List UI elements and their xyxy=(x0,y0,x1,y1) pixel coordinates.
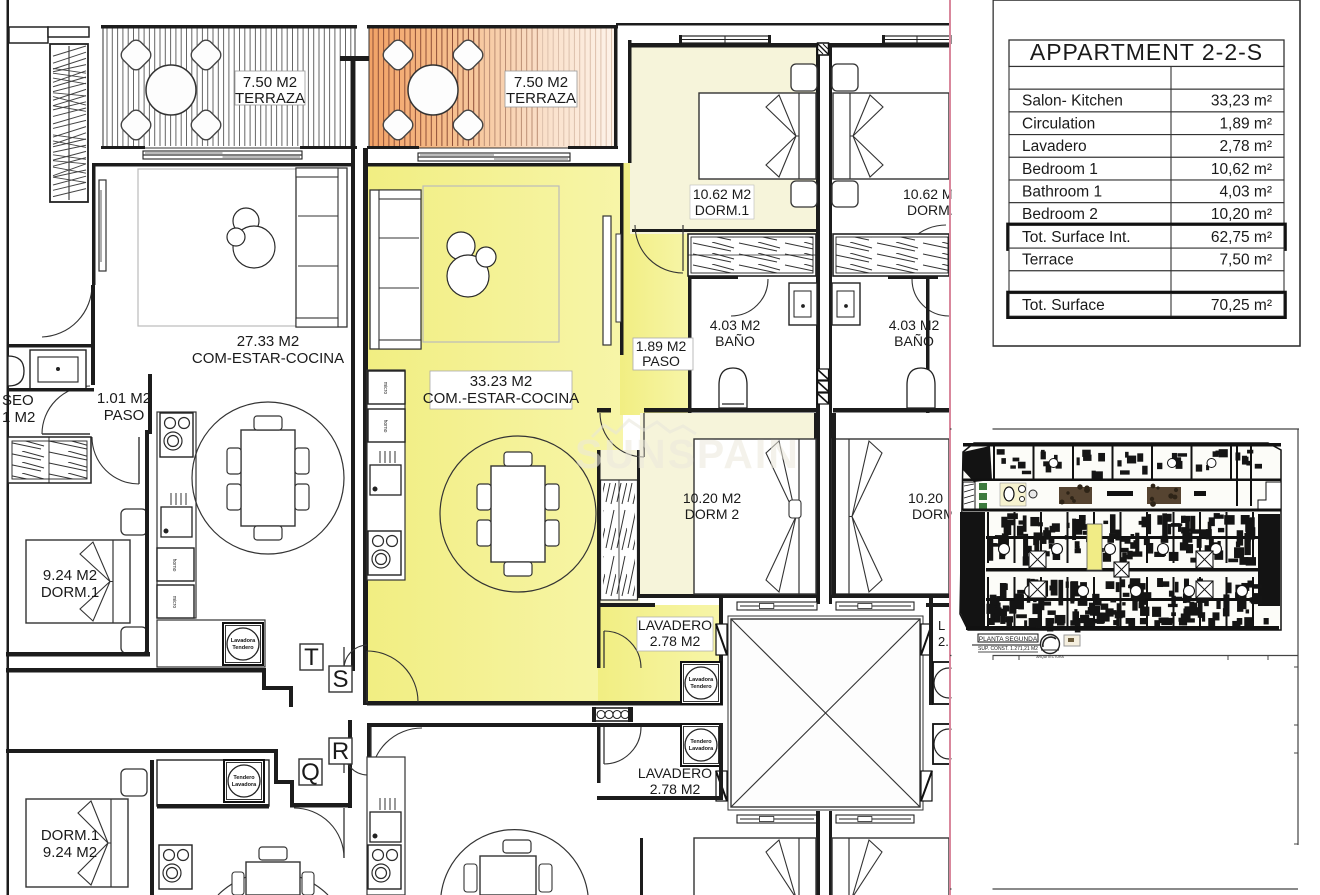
svg-text:10,62 m²: 10,62 m² xyxy=(1211,161,1272,178)
svg-text:COM-ESTAR-COCINA: COM-ESTAR-COCINA xyxy=(192,350,344,367)
svg-text:7.50 M2: 7.50 M2 xyxy=(514,74,568,91)
svg-text:4.03 M2: 4.03 M2 xyxy=(889,317,940,333)
svg-text:horno: horno xyxy=(382,420,388,433)
svg-text:10.20: 10.20 xyxy=(908,490,943,506)
svg-text:62,75 m²: 62,75 m² xyxy=(1211,229,1272,246)
svg-text:10.62 M: 10.62 M xyxy=(903,186,954,202)
svg-text:L: L xyxy=(938,618,945,633)
svg-text:Tot. Surface Int.: Tot. Surface Int. xyxy=(1022,229,1131,246)
svg-text:DORM.1: DORM.1 xyxy=(41,827,99,844)
svg-text:27.33 M2: 27.33 M2 xyxy=(237,333,300,350)
svg-text:SUNSPAIN: SUNSPAIN xyxy=(575,431,800,477)
svg-text:Bathroom 1: Bathroom 1 xyxy=(1022,184,1102,201)
svg-text:Tendero: Tendero xyxy=(690,684,712,690)
svg-text:micro: micro xyxy=(171,596,177,608)
svg-text:Tendero: Tendero xyxy=(690,739,712,745)
svg-text:1.01 M2: 1.01 M2 xyxy=(97,390,151,407)
svg-text:10.62 M2: 10.62 M2 xyxy=(693,186,752,202)
svg-text:2.: 2. xyxy=(938,634,949,649)
svg-text:4,03 m²: 4,03 m² xyxy=(1219,184,1272,201)
svg-text:10,20 m²: 10,20 m² xyxy=(1211,206,1272,223)
svg-text:Bedroom 1: Bedroom 1 xyxy=(1022,161,1098,178)
svg-text:BAÑO: BAÑO xyxy=(894,333,934,349)
svg-text:DORM.: DORM. xyxy=(907,202,954,218)
svg-text:Q: Q xyxy=(301,759,320,786)
svg-text:TERRAZA: TERRAZA xyxy=(235,90,305,107)
svg-text:PASO: PASO xyxy=(104,407,145,424)
svg-text:7,50 m²: 7,50 m² xyxy=(1219,252,1272,269)
svg-text:2.78 M2: 2.78 M2 xyxy=(650,781,701,797)
svg-text:DORM: DORM xyxy=(912,506,955,522)
svg-text:SUP. CONST. 1.271,21 M2: SUP. CONST. 1.271,21 M2 xyxy=(978,646,1038,652)
svg-text:PASO: PASO xyxy=(642,353,680,369)
svg-text:Circulation: Circulation xyxy=(1022,115,1095,132)
svg-text:horno: horno xyxy=(171,559,177,572)
svg-text:2,78 m²: 2,78 m² xyxy=(1219,138,1272,155)
svg-text:TERRAZA: TERRAZA xyxy=(506,90,576,107)
svg-text:APPARTMENT 2-2-S: APPARTMENT 2-2-S xyxy=(1030,39,1263,65)
svg-text:PLANTA SEGUNDA: PLANTA SEGUNDA xyxy=(979,636,1038,643)
svg-text:1,89 m²: 1,89 m² xyxy=(1219,115,1272,132)
svg-text:LAVADERO: LAVADERO xyxy=(638,617,712,633)
svg-text:70,25 m²: 70,25 m² xyxy=(1211,297,1272,314)
svg-text:33,23 m²: 33,23 m² xyxy=(1211,93,1272,110)
svg-text:Terrace: Terrace xyxy=(1022,252,1074,269)
svg-text:S: S xyxy=(332,666,348,693)
svg-text:SEO: SEO xyxy=(2,392,34,409)
svg-text:1 M2: 1 M2 xyxy=(2,409,35,426)
svg-text:Bedroom 2: Bedroom 2 xyxy=(1022,206,1098,223)
svg-text:Salon- Kitchen: Salon- Kitchen xyxy=(1022,93,1123,110)
svg-text:1.89 M2: 1.89 M2 xyxy=(636,338,687,354)
svg-text:10.20 M2: 10.20 M2 xyxy=(683,490,742,506)
svg-text:33.23 M2: 33.23 M2 xyxy=(470,373,533,390)
svg-text:Tendero: Tendero xyxy=(232,645,254,651)
svg-text:DORM.1: DORM.1 xyxy=(41,584,99,601)
svg-text:4.03 M2: 4.03 M2 xyxy=(710,317,761,333)
svg-text:Lavadero: Lavadero xyxy=(1022,138,1087,155)
svg-text:Lavadora: Lavadora xyxy=(231,638,256,644)
svg-text:R: R xyxy=(332,738,349,765)
svg-text:9.24 M2: 9.24 M2 xyxy=(43,567,97,584)
svg-text:micro: micro xyxy=(382,382,388,394)
svg-text:BAÑO: BAÑO xyxy=(715,333,755,349)
svg-text:Tot. Surface: Tot. Surface xyxy=(1022,297,1105,314)
svg-text:Lavadora: Lavadora xyxy=(232,782,257,788)
svg-text:DORM.1: DORM.1 xyxy=(695,202,750,218)
svg-text:9.24 M2: 9.24 M2 xyxy=(43,844,97,861)
svg-text:Lavadora: Lavadora xyxy=(689,677,714,683)
svg-text:DORM 2: DORM 2 xyxy=(685,506,740,522)
svg-text:2.78 M2: 2.78 M2 xyxy=(650,633,701,649)
svg-text:LAVADERO: LAVADERO xyxy=(638,765,712,781)
svg-text:ARQUITECTURA: ARQUITECTURA xyxy=(1036,655,1064,659)
svg-text:Tendero: Tendero xyxy=(233,775,255,781)
svg-text:7.50 M2: 7.50 M2 xyxy=(243,74,297,91)
svg-text:COM.-ESTAR-COCINA: COM.-ESTAR-COCINA xyxy=(423,390,579,407)
svg-text:T: T xyxy=(304,644,319,671)
svg-text:Lavadora: Lavadora xyxy=(689,746,714,752)
